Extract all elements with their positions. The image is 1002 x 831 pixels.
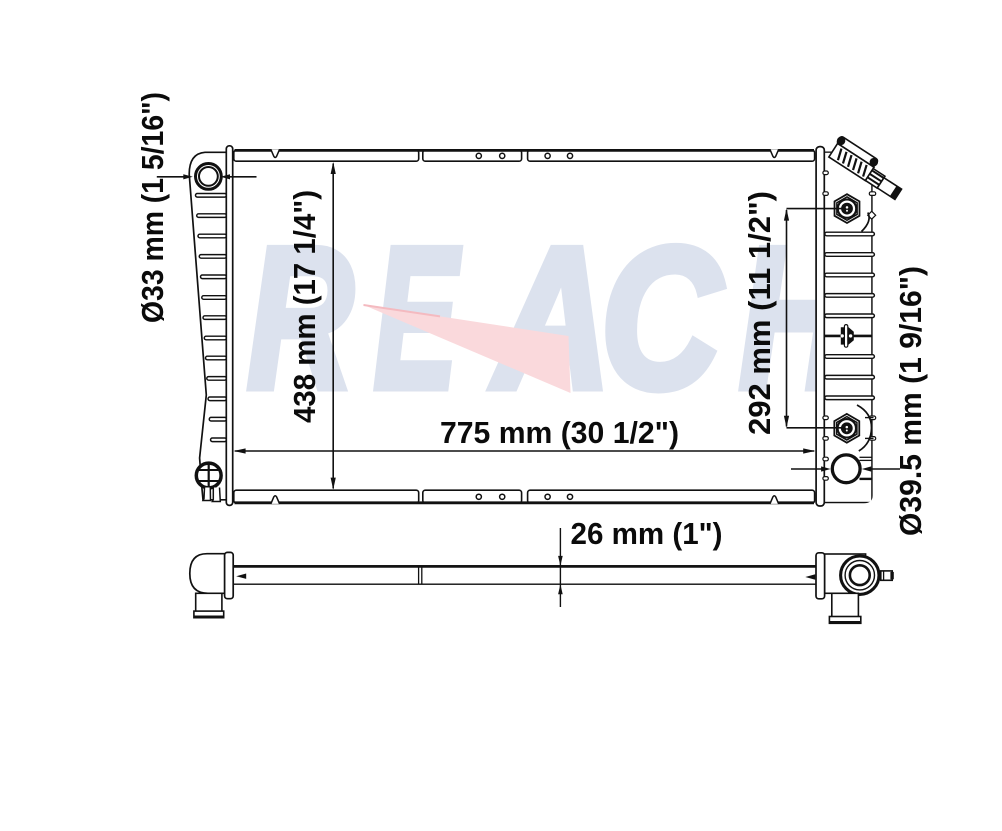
svg-text:775 mm (30 1/2"): 775 mm (30 1/2") — [440, 415, 679, 450]
svg-text:292 mm (11 1/2"): 292 mm (11 1/2") — [742, 191, 777, 435]
svg-text:Ø39.5 mm (1 9/16"): Ø39.5 mm (1 9/16") — [893, 266, 928, 536]
svg-text:438 mm (17 1/4"): 438 mm (17 1/4") — [287, 190, 322, 423]
svg-text:A: A — [491, 207, 610, 430]
svg-text:26 mm (1"): 26 mm (1") — [571, 516, 723, 551]
svg-text:C: C — [601, 206, 723, 429]
svg-text:Ø33 mm (1 5/16"): Ø33 mm (1 5/16") — [135, 92, 170, 323]
